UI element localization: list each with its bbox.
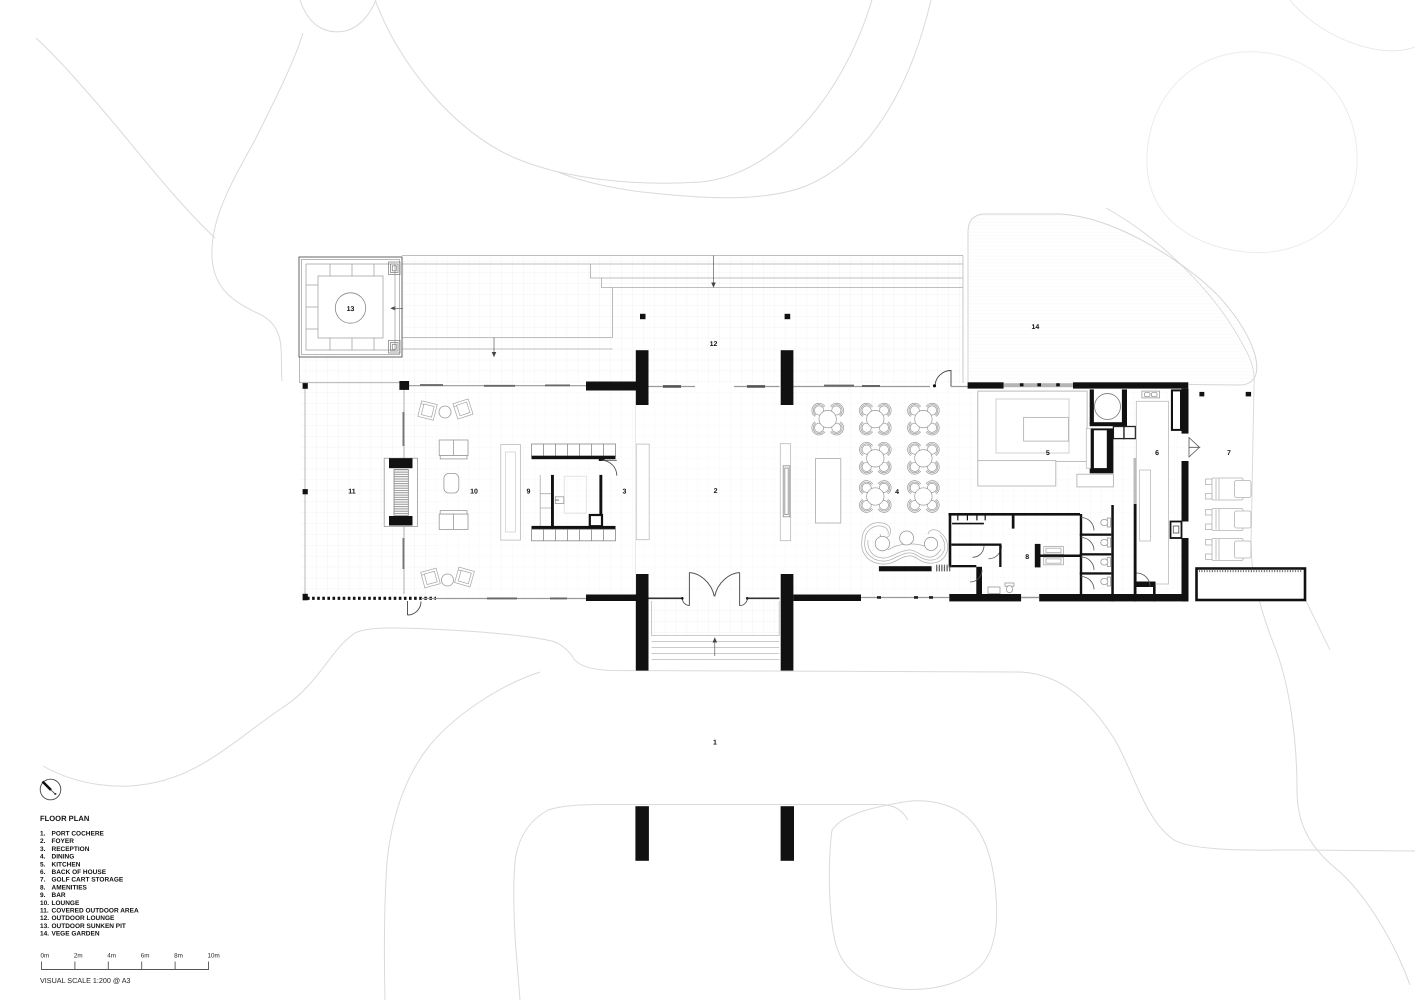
svg-text:4.DINING: 4.DINING [40, 854, 74, 861]
svg-text:7.GOLF CART STORAGE: 7.GOLF CART STORAGE [40, 877, 124, 884]
svg-text:6: 6 [1155, 450, 1159, 457]
svg-text:4m: 4m [107, 953, 116, 960]
svg-text:14: 14 [1032, 324, 1040, 331]
svg-text:3: 3 [622, 489, 626, 496]
svg-text:2: 2 [714, 488, 718, 495]
svg-text:12.OUTDOOR LOUNGE: 12.OUTDOOR LOUNGE [40, 915, 115, 922]
svg-text:FLOOR PLAN: FLOOR PLAN [40, 814, 89, 823]
svg-text:8: 8 [1025, 554, 1029, 561]
svg-text:0m: 0m [41, 953, 50, 960]
svg-text:9: 9 [527, 489, 531, 496]
svg-text:VISUAL SCALE 1:200 @ A3: VISUAL SCALE 1:200 @ A3 [40, 976, 131, 985]
svg-text:13.OUTDOOR SUNKEN PIT: 13.OUTDOOR SUNKEN PIT [40, 923, 126, 930]
svg-text:1: 1 [713, 740, 717, 747]
svg-text:12: 12 [710, 341, 718, 348]
svg-text:10: 10 [470, 489, 478, 496]
svg-text:11: 11 [348, 489, 356, 496]
svg-text:10m: 10m [208, 953, 220, 960]
svg-text:4: 4 [895, 489, 899, 496]
svg-text:7: 7 [1227, 450, 1231, 457]
svg-text:13: 13 [347, 306, 355, 313]
svg-text:8m: 8m [174, 953, 183, 960]
svg-text:6m: 6m [141, 953, 150, 960]
svg-text:11.COVERED OUTDOOR AREA: 11.COVERED OUTDOOR AREA [40, 908, 139, 915]
svg-text:14.VEGE GARDEN: 14.VEGE GARDEN [40, 931, 100, 938]
svg-text:10.LOUNGE: 10.LOUNGE [40, 900, 80, 907]
svg-text:2.FOYER: 2.FOYER [40, 838, 74, 845]
svg-text:5: 5 [1046, 450, 1050, 457]
svg-text:2m: 2m [74, 953, 83, 960]
svg-text:9.BAR: 9.BAR [40, 892, 66, 899]
